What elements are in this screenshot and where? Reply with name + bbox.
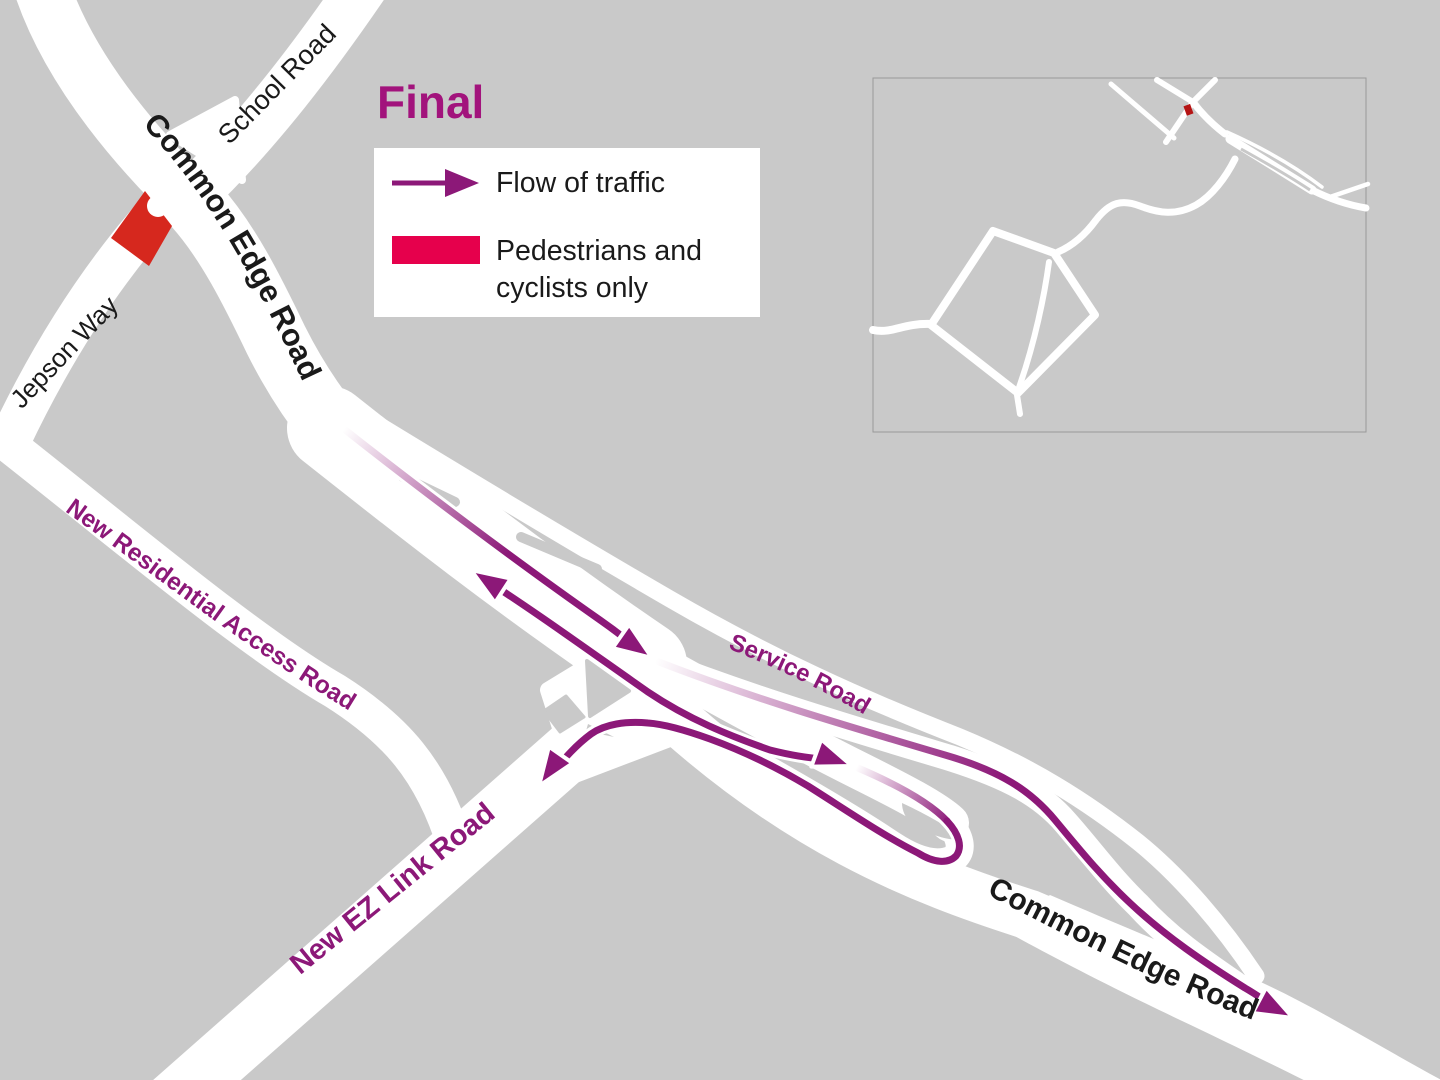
svg-text:Pedestrians and: Pedestrians and [496, 235, 702, 267]
svg-text:Final: Final [377, 76, 484, 128]
svg-text:Flow of traffic: Flow of traffic [496, 167, 665, 199]
svg-text:cyclists only: cyclists only [496, 272, 649, 304]
